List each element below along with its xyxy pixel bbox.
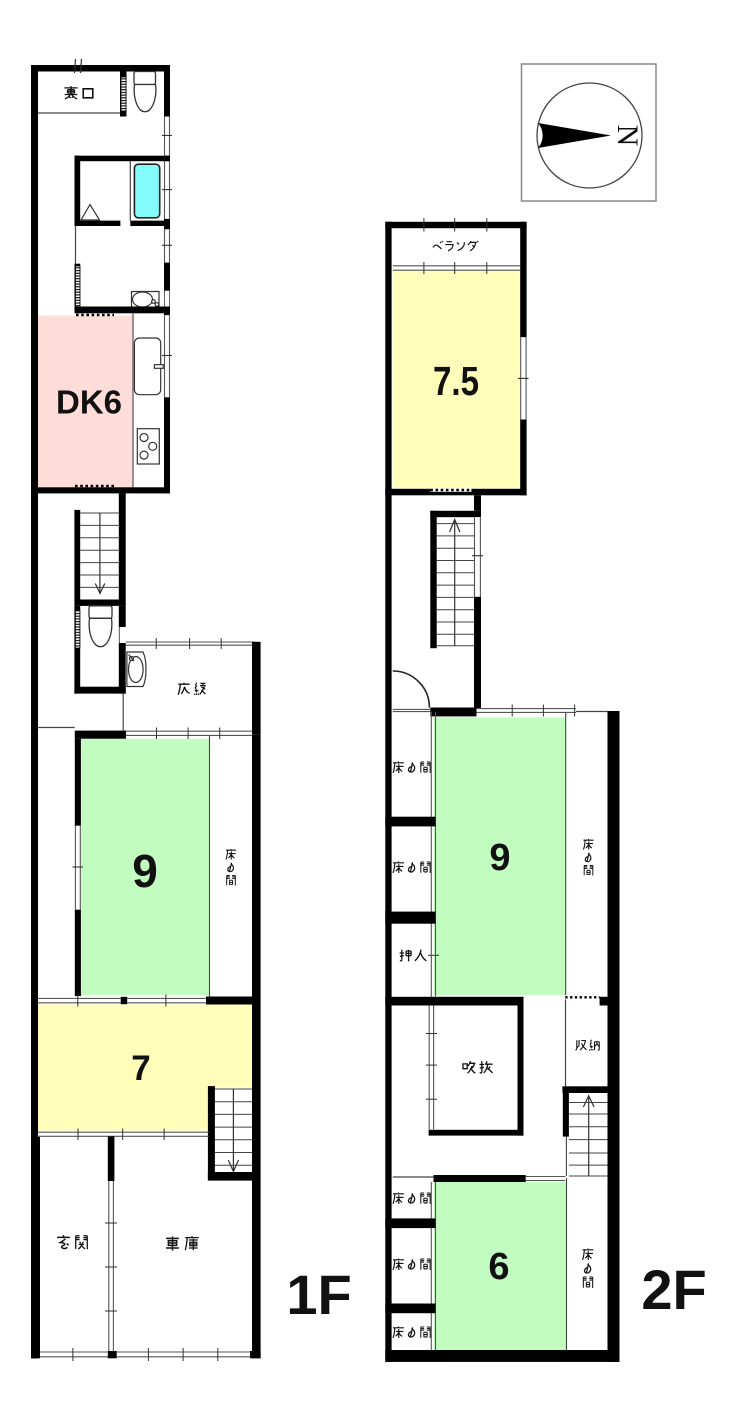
svg-text:7: 7 bbox=[131, 1049, 150, 1088]
svg-text:2F: 2F bbox=[641, 1258, 706, 1321]
svg-text:9: 9 bbox=[489, 837, 510, 879]
svg-text:1F: 1F bbox=[286, 1263, 351, 1326]
svg-text:9: 9 bbox=[132, 845, 158, 897]
svg-text:N: N bbox=[611, 125, 644, 147]
svg-text:DK6: DK6 bbox=[56, 384, 122, 421]
svg-text:6: 6 bbox=[488, 1246, 509, 1288]
svg-text:7.5: 7.5 bbox=[433, 358, 479, 404]
